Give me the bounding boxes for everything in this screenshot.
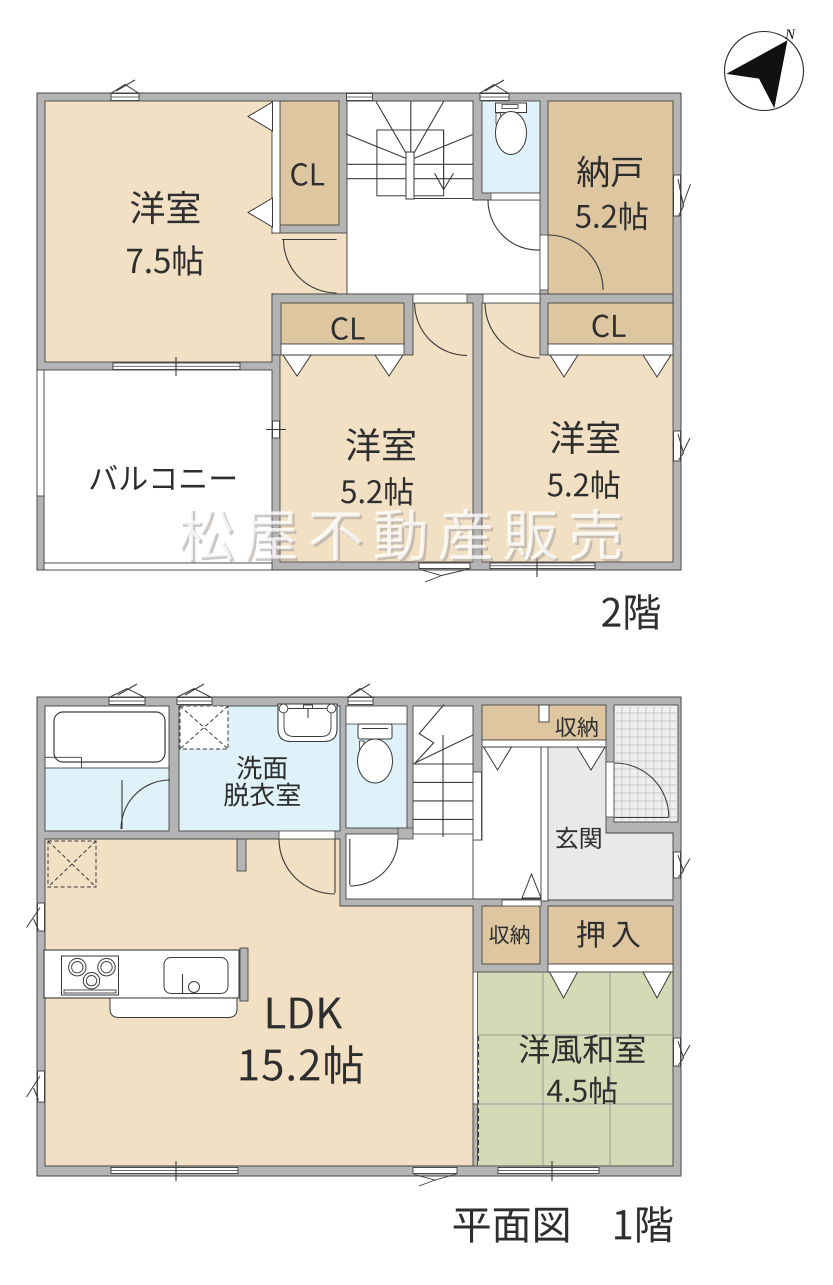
svg-text:N: N — [784, 27, 796, 43]
